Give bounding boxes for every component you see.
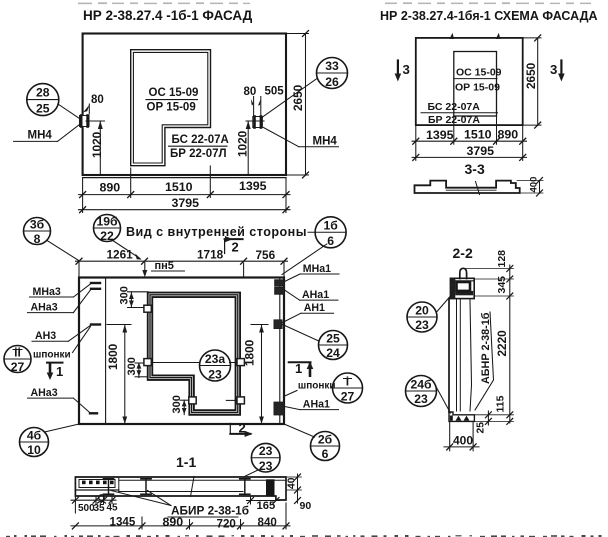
svg-text:2: 2 [239, 420, 246, 435]
svg-text:756: 756 [256, 248, 276, 262]
svg-text:23: 23 [414, 392, 428, 406]
svg-text:Вид с внутренней стороны: Вид с внутренней стороны [126, 225, 307, 239]
svg-text:БС 22-07А: БС 22-07А [428, 101, 481, 113]
svg-text:1395: 1395 [239, 179, 267, 193]
svg-text:1020: 1020 [90, 131, 104, 158]
svg-text:24: 24 [326, 346, 340, 360]
svg-text:720: 720 [217, 518, 236, 531]
svg-text:2: 2 [232, 240, 239, 255]
svg-text:МНа1: МНа1 [303, 263, 331, 275]
svg-text:1261: 1261 [107, 247, 134, 261]
svg-text:2-2: 2-2 [453, 245, 473, 261]
svg-text:1: 1 [295, 361, 302, 376]
svg-text:3б: 3б [30, 217, 45, 231]
svg-text:23: 23 [259, 459, 273, 473]
svg-text:20: 20 [415, 303, 429, 317]
svg-text:23: 23 [259, 444, 273, 458]
svg-text:1б: 1б [323, 219, 338, 233]
svg-text:3-3: 3-3 [465, 161, 485, 177]
svg-text:27: 27 [11, 360, 25, 374]
svg-text:19б: 19б [96, 214, 118, 228]
svg-text:1-1: 1-1 [176, 454, 196, 470]
svg-text:33: 33 [325, 59, 339, 73]
svg-text:115: 115 [495, 395, 507, 412]
svg-text:505: 505 [265, 86, 285, 98]
svg-text:128: 128 [496, 250, 508, 268]
svg-text:345: 345 [496, 276, 508, 294]
svg-text:МН4: МН4 [313, 136, 338, 148]
svg-text:2б: 2б [318, 432, 333, 446]
svg-text:2650: 2650 [524, 62, 538, 89]
svg-text:3: 3 [550, 62, 557, 77]
svg-text:1510: 1510 [165, 180, 193, 194]
svg-text:6: 6 [322, 447, 329, 461]
svg-text:80: 80 [244, 86, 257, 98]
svg-text:шпонки: шпонки [298, 380, 336, 391]
svg-text:БС 22-07А: БС 22-07А [172, 134, 229, 146]
svg-text:300: 300 [126, 357, 138, 375]
svg-text:МН4: МН4 [28, 130, 53, 142]
svg-text:165: 165 [257, 500, 276, 512]
svg-text:45: 45 [107, 503, 119, 514]
svg-text:АНа3: АНа3 [31, 387, 58, 399]
svg-text:4б: 4б [27, 428, 42, 442]
svg-text:АН1: АН1 [304, 302, 325, 314]
svg-text:90: 90 [300, 500, 312, 512]
svg-text:1345: 1345 [110, 515, 136, 528]
svg-text:БР 22-07Л: БР 22-07Л [170, 148, 227, 160]
svg-text:400: 400 [453, 433, 473, 447]
svg-text:27: 27 [341, 389, 355, 403]
svg-text:890: 890 [163, 515, 184, 529]
svg-text:22: 22 [100, 229, 114, 243]
svg-text:1800: 1800 [106, 343, 120, 370]
svg-text:28: 28 [36, 86, 50, 100]
svg-text:6: 6 [327, 234, 334, 248]
svg-text:ОР 15-09: ОР 15-09 [147, 102, 196, 114]
svg-text:840: 840 [258, 516, 277, 529]
svg-text:300: 300 [171, 395, 183, 413]
svg-text:ОС 15-09: ОС 15-09 [149, 87, 199, 99]
svg-text:ОР 15-09: ОР 15-09 [455, 82, 500, 94]
svg-text:1395: 1395 [426, 128, 454, 142]
svg-text:шпонки: шпонки [33, 350, 71, 361]
svg-text:3795: 3795 [172, 196, 200, 210]
svg-text:АНа1: АНа1 [303, 398, 330, 410]
svg-text:1: 1 [56, 364, 63, 379]
svg-text:300: 300 [119, 286, 131, 304]
svg-text:24б: 24б [410, 377, 432, 391]
svg-text:890: 890 [100, 181, 121, 195]
svg-text:ОС 15-09: ОС 15-09 [456, 67, 502, 79]
svg-text:25: 25 [326, 331, 340, 345]
svg-text:25: 25 [36, 102, 50, 116]
svg-text:МНа3: МНа3 [33, 286, 61, 298]
svg-text:2220: 2220 [495, 330, 509, 357]
svg-text:3795: 3795 [467, 144, 495, 158]
svg-text:23а: 23а [205, 352, 226, 366]
svg-text:i: i [346, 374, 349, 388]
svg-text:26: 26 [325, 75, 339, 89]
svg-text:АН3: АН3 [35, 330, 56, 342]
svg-text:400: 400 [529, 177, 540, 193]
svg-text:1510: 1510 [464, 128, 492, 142]
svg-text:1020: 1020 [236, 130, 250, 157]
svg-text:НР 2-38.27.4-1бя-1 СХЕМА ФАСАД: НР 2-38.27.4-1бя-1 СХЕМА ФАСАДА [380, 9, 598, 23]
svg-text:1718: 1718 [197, 247, 224, 261]
svg-text:АНа3: АНа3 [31, 301, 58, 313]
svg-text:890: 890 [498, 128, 519, 142]
svg-text:80: 80 [91, 94, 104, 106]
svg-text:10: 10 [27, 443, 41, 457]
svg-text:1800: 1800 [243, 339, 257, 366]
svg-text:8: 8 [34, 232, 41, 246]
svg-text:АНа1: АНа1 [302, 289, 329, 301]
svg-text:НР 2-38.27.4 -1б-1 ФАСАД: НР 2-38.27.4 -1б-1 ФАСАД [83, 8, 253, 23]
svg-text:3: 3 [403, 62, 410, 77]
svg-text:25: 25 [476, 422, 487, 434]
svg-text:35: 35 [94, 503, 106, 514]
svg-text:23: 23 [415, 318, 429, 332]
svg-text:ii: ii [14, 345, 21, 359]
svg-text:пн5: пн5 [155, 260, 174, 272]
svg-text:23: 23 [208, 367, 222, 381]
